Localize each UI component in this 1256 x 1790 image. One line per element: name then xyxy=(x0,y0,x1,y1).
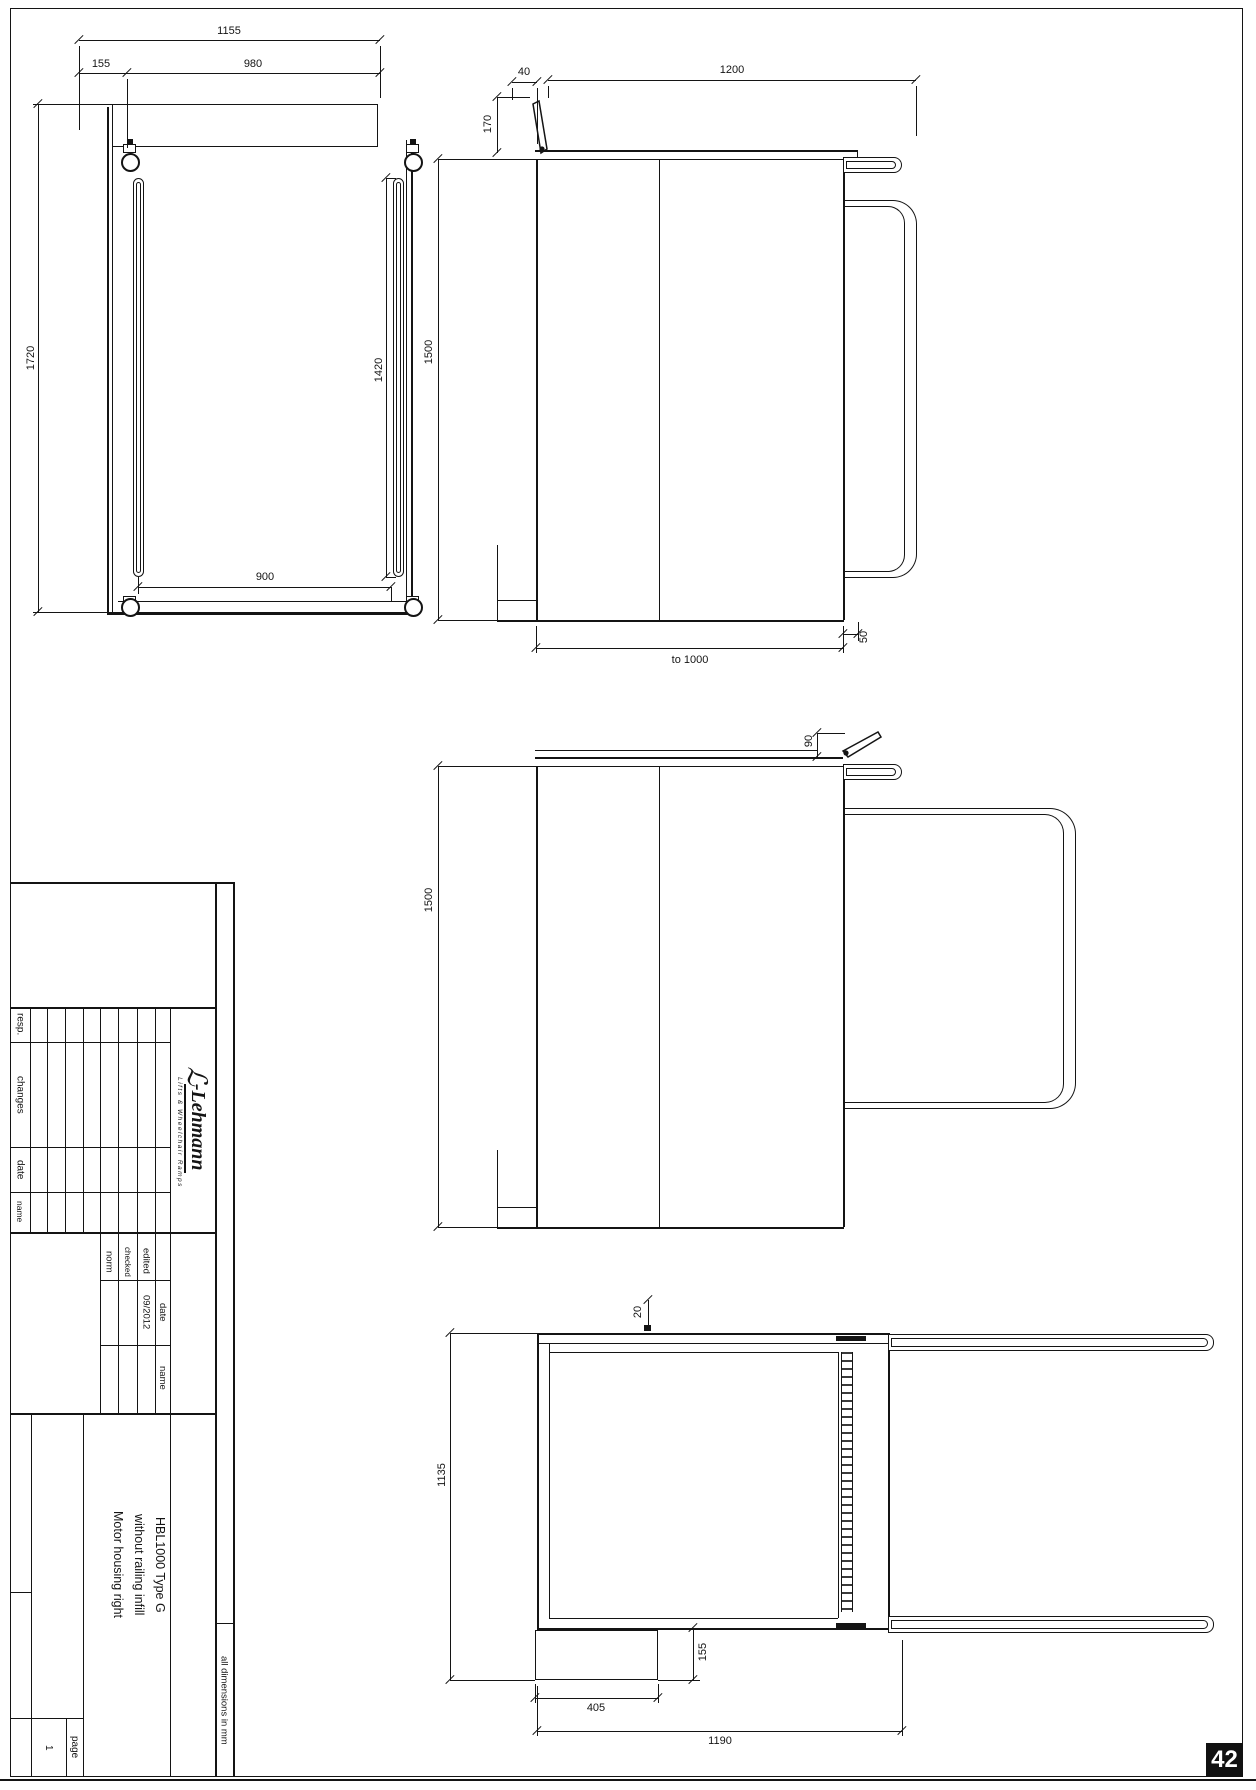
tb-resp-label: resp. xyxy=(10,1007,30,1042)
plan-right-rail-inner xyxy=(406,140,407,615)
ext-line xyxy=(658,1680,700,1681)
tb-line xyxy=(10,1718,84,1719)
ext-line xyxy=(33,612,107,613)
tb-line xyxy=(10,1413,216,1415)
ext-line xyxy=(902,1640,903,1736)
plan-guide-slot-left-inner xyxy=(136,182,141,573)
plan-roller-bottom-right xyxy=(404,598,423,617)
tower-bottom xyxy=(497,620,844,622)
plan-roller-bracket xyxy=(406,144,419,153)
ext-line xyxy=(535,1684,536,1703)
plan-roller-bracket xyxy=(123,144,136,153)
motor-housing-box xyxy=(535,1630,658,1680)
ext-line xyxy=(916,86,917,136)
base-step-horz xyxy=(497,1207,536,1208)
ext-line xyxy=(450,1333,537,1334)
tb-units-note: all dimensions in mm xyxy=(215,1628,233,1773)
plan-roller-bottom-left xyxy=(121,598,140,617)
tb-line xyxy=(30,1007,31,1232)
tb-line xyxy=(10,1192,170,1193)
title-line-1: HBL1000 Type G xyxy=(149,1425,170,1705)
tower-divider xyxy=(659,766,660,1227)
deck-bottom xyxy=(535,159,857,160)
ext-line xyxy=(127,79,128,148)
dim-line xyxy=(817,733,818,750)
base-step-vert xyxy=(497,545,498,620)
tb-name-label: name xyxy=(10,1192,30,1232)
ext-line xyxy=(391,587,392,601)
tb-name-header: name xyxy=(155,1347,170,1409)
rail-tube-bottom-inner xyxy=(891,1620,1208,1629)
tb-line xyxy=(65,1007,66,1232)
dim-170: 170 xyxy=(481,112,495,136)
dim-line xyxy=(497,97,498,153)
dim-1720: 1720 xyxy=(24,341,38,375)
tb-edited-date: 09/2012 xyxy=(137,1282,155,1342)
tb-line xyxy=(10,1592,32,1593)
plan-top-beam xyxy=(112,104,378,147)
tb-line xyxy=(10,1042,170,1043)
drawing-title: HBL1000 Type G without railing infill Mo… xyxy=(85,1425,170,1705)
handrail-loop-extended-inner xyxy=(844,814,1064,1103)
tower-left xyxy=(536,159,538,620)
tb-line xyxy=(100,1345,171,1346)
ext-line xyxy=(537,88,538,144)
ext-line xyxy=(536,626,537,653)
dim-line xyxy=(438,159,439,620)
drawing-sheet: 42 1155 155 980 1720 1420 900 xyxy=(0,0,1256,1790)
housing-wall-inner xyxy=(838,1352,839,1618)
dim-1200: 1200 xyxy=(702,64,762,77)
tb-page-number: 1 xyxy=(31,1720,66,1775)
title-line-2: without railing infill xyxy=(128,1425,149,1705)
dim-line xyxy=(438,766,439,1227)
platform-top-inner1 xyxy=(537,1343,888,1344)
dim-line xyxy=(548,80,916,81)
deck-top xyxy=(535,150,857,152)
deck-top xyxy=(535,757,843,759)
tb-changes-label: changes xyxy=(10,1042,30,1147)
dim-40: 40 xyxy=(504,66,544,79)
dim-line xyxy=(537,1731,902,1732)
rail-tube-top-inner xyxy=(891,1338,1208,1347)
ext-line xyxy=(386,178,396,179)
tb-date-label: date xyxy=(10,1147,30,1192)
dim-line xyxy=(386,178,387,577)
rolloff-flap-raised xyxy=(523,93,555,157)
ext-line xyxy=(386,577,396,578)
handrail-stub-inner xyxy=(846,161,896,169)
dim-20: 20 xyxy=(631,1302,645,1322)
hinge-fitting-bottom xyxy=(836,1623,866,1628)
ext-line xyxy=(438,766,535,767)
dim-1500-lower: 1500 xyxy=(422,883,436,917)
platform-left-edge xyxy=(537,1333,539,1628)
tb-line xyxy=(83,1007,84,1232)
base-step-horz xyxy=(497,600,536,601)
ext-line xyxy=(548,86,549,98)
tb-line xyxy=(100,1007,101,1413)
tb-line xyxy=(118,1007,119,1413)
tb-line xyxy=(10,882,233,884)
logo-name: -Lehmann xyxy=(184,1084,209,1173)
ext-line xyxy=(817,733,845,734)
platform-top-inner2 xyxy=(549,1352,838,1353)
ext-line xyxy=(33,104,112,105)
hinge-fitting-top xyxy=(836,1336,866,1341)
edge-mark xyxy=(644,1325,651,1331)
dim-1135: 1135 xyxy=(435,1458,449,1492)
plan-left-rail-outer xyxy=(107,107,109,615)
dim-405: 405 xyxy=(566,1702,626,1715)
dim-90: 90 xyxy=(802,731,816,751)
platform-bottom-inner xyxy=(549,1618,838,1619)
tb-line xyxy=(83,1413,84,1777)
dim-line xyxy=(79,40,380,41)
dim-1155: 1155 xyxy=(199,25,259,38)
dim-line xyxy=(693,1628,694,1680)
dim-155: 155 xyxy=(79,58,123,71)
dim-line xyxy=(535,1698,658,1699)
tower-divider xyxy=(659,159,660,620)
tb-norm-label: norm xyxy=(100,1238,118,1286)
dim-line xyxy=(38,104,39,612)
deck-bottom xyxy=(535,766,843,767)
dim-line xyxy=(138,587,391,588)
page-number-badge: 42 xyxy=(1206,1743,1243,1777)
plan-roller-pin xyxy=(410,139,416,144)
ext-line xyxy=(450,1680,535,1681)
title-line-3: Motor housing right xyxy=(107,1425,128,1705)
ext-line xyxy=(438,159,535,160)
sheet-bottom-rule xyxy=(0,1779,1256,1781)
company-logo: ℒ -Lehmann Lifts & Wheelchair Ramps xyxy=(170,1007,215,1232)
plan-guide-slot-right-inner xyxy=(396,182,401,573)
tb-line xyxy=(47,1007,48,1232)
plan-roller-top-left xyxy=(121,153,140,172)
tower-left xyxy=(536,766,538,1227)
ext-line xyxy=(438,1227,497,1228)
rolloff-flap-lowered xyxy=(833,723,885,763)
handrail-stub-inner xyxy=(846,768,896,776)
deck-lip xyxy=(535,750,817,751)
dim-line xyxy=(450,1333,451,1680)
base-step-vert xyxy=(497,1150,498,1227)
tower-bottom xyxy=(497,1227,844,1229)
dim-155-housing: 155 xyxy=(696,1640,710,1664)
tb-checked-label: checked xyxy=(118,1238,137,1286)
tb-line xyxy=(10,1232,216,1234)
dim-50: 50 xyxy=(857,627,871,647)
dim-to-1000: to 1000 xyxy=(655,654,725,667)
housing-wall-outer xyxy=(888,1333,890,1628)
ext-line xyxy=(512,88,513,100)
dim-1190: 1190 xyxy=(690,1735,750,1748)
ext-line xyxy=(497,97,530,98)
dim-line xyxy=(536,648,843,649)
plan-roller-top-right xyxy=(404,153,423,172)
plan-bottom-beam xyxy=(107,612,419,615)
ext-line xyxy=(658,1684,659,1703)
plan-left-rail-inner xyxy=(112,147,113,615)
dim-1420: 1420 xyxy=(372,353,386,387)
logo-tagline: Lifts & Wheelchair Ramps xyxy=(176,1077,183,1188)
ext-line xyxy=(438,620,497,621)
tb-edited-label: edited xyxy=(137,1236,155,1286)
tb-date-header: date xyxy=(155,1282,170,1342)
tb-line xyxy=(215,1623,234,1624)
tb-line xyxy=(137,1007,138,1413)
ext-line xyxy=(537,1686,538,1736)
drive-belt xyxy=(841,1352,853,1612)
dim-980: 980 xyxy=(223,58,283,71)
dim-1500-upper: 1500 xyxy=(422,335,436,369)
plan-right-rail-outer xyxy=(411,140,413,615)
platform-top-edge xyxy=(537,1333,888,1335)
tb-page-label: page xyxy=(66,1720,83,1775)
tb-line xyxy=(10,1147,170,1148)
dim-900: 900 xyxy=(235,571,295,584)
tb-line xyxy=(233,882,235,1777)
handrail-loop-inner xyxy=(844,206,905,572)
ext-line xyxy=(138,577,139,594)
plan-bottom-edge xyxy=(118,601,406,602)
platform-left-inner xyxy=(549,1343,550,1618)
